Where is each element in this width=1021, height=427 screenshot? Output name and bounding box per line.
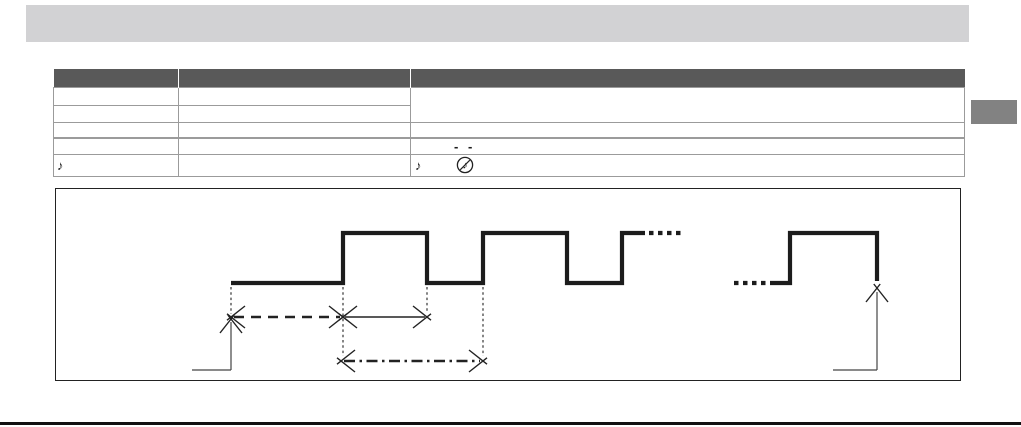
dashes-cell: - - <box>411 138 965 155</box>
cell <box>179 88 411 106</box>
cell <box>179 106 411 123</box>
cell <box>54 123 179 139</box>
table-row <box>54 123 965 139</box>
table-row: - - <box>54 138 965 155</box>
manual-page: - - ♪ ♪ ♪ <box>0 0 1021 427</box>
cell <box>179 123 411 139</box>
footer-rule <box>0 422 1021 425</box>
cell <box>54 88 179 106</box>
cell <box>411 123 965 139</box>
cell <box>54 138 179 155</box>
note-cell: ♪ <box>54 155 179 177</box>
header-cell-1 <box>54 69 179 88</box>
cell <box>179 138 411 155</box>
page-edge-tab <box>971 100 1017 124</box>
table-header-row <box>54 69 965 88</box>
table-row: ♪ ♪ ♪ <box>54 155 965 177</box>
header-cell-3 <box>411 69 965 88</box>
cell <box>179 155 411 177</box>
eighth-note-icon: ♪ <box>415 158 422 173</box>
cell-merged <box>411 88 965 123</box>
title-bar <box>26 5 969 42</box>
header-cell-2 <box>179 69 411 88</box>
timing-diagram-box <box>55 188 961 381</box>
cell <box>54 106 179 123</box>
muted-note-icon: ♪ <box>456 156 474 177</box>
signal-table: - - ♪ ♪ ♪ <box>53 69 964 177</box>
table: - - ♪ ♪ ♪ <box>53 69 965 177</box>
note-mute-cell: ♪ ♪ <box>411 155 965 177</box>
table-row <box>54 88 965 106</box>
